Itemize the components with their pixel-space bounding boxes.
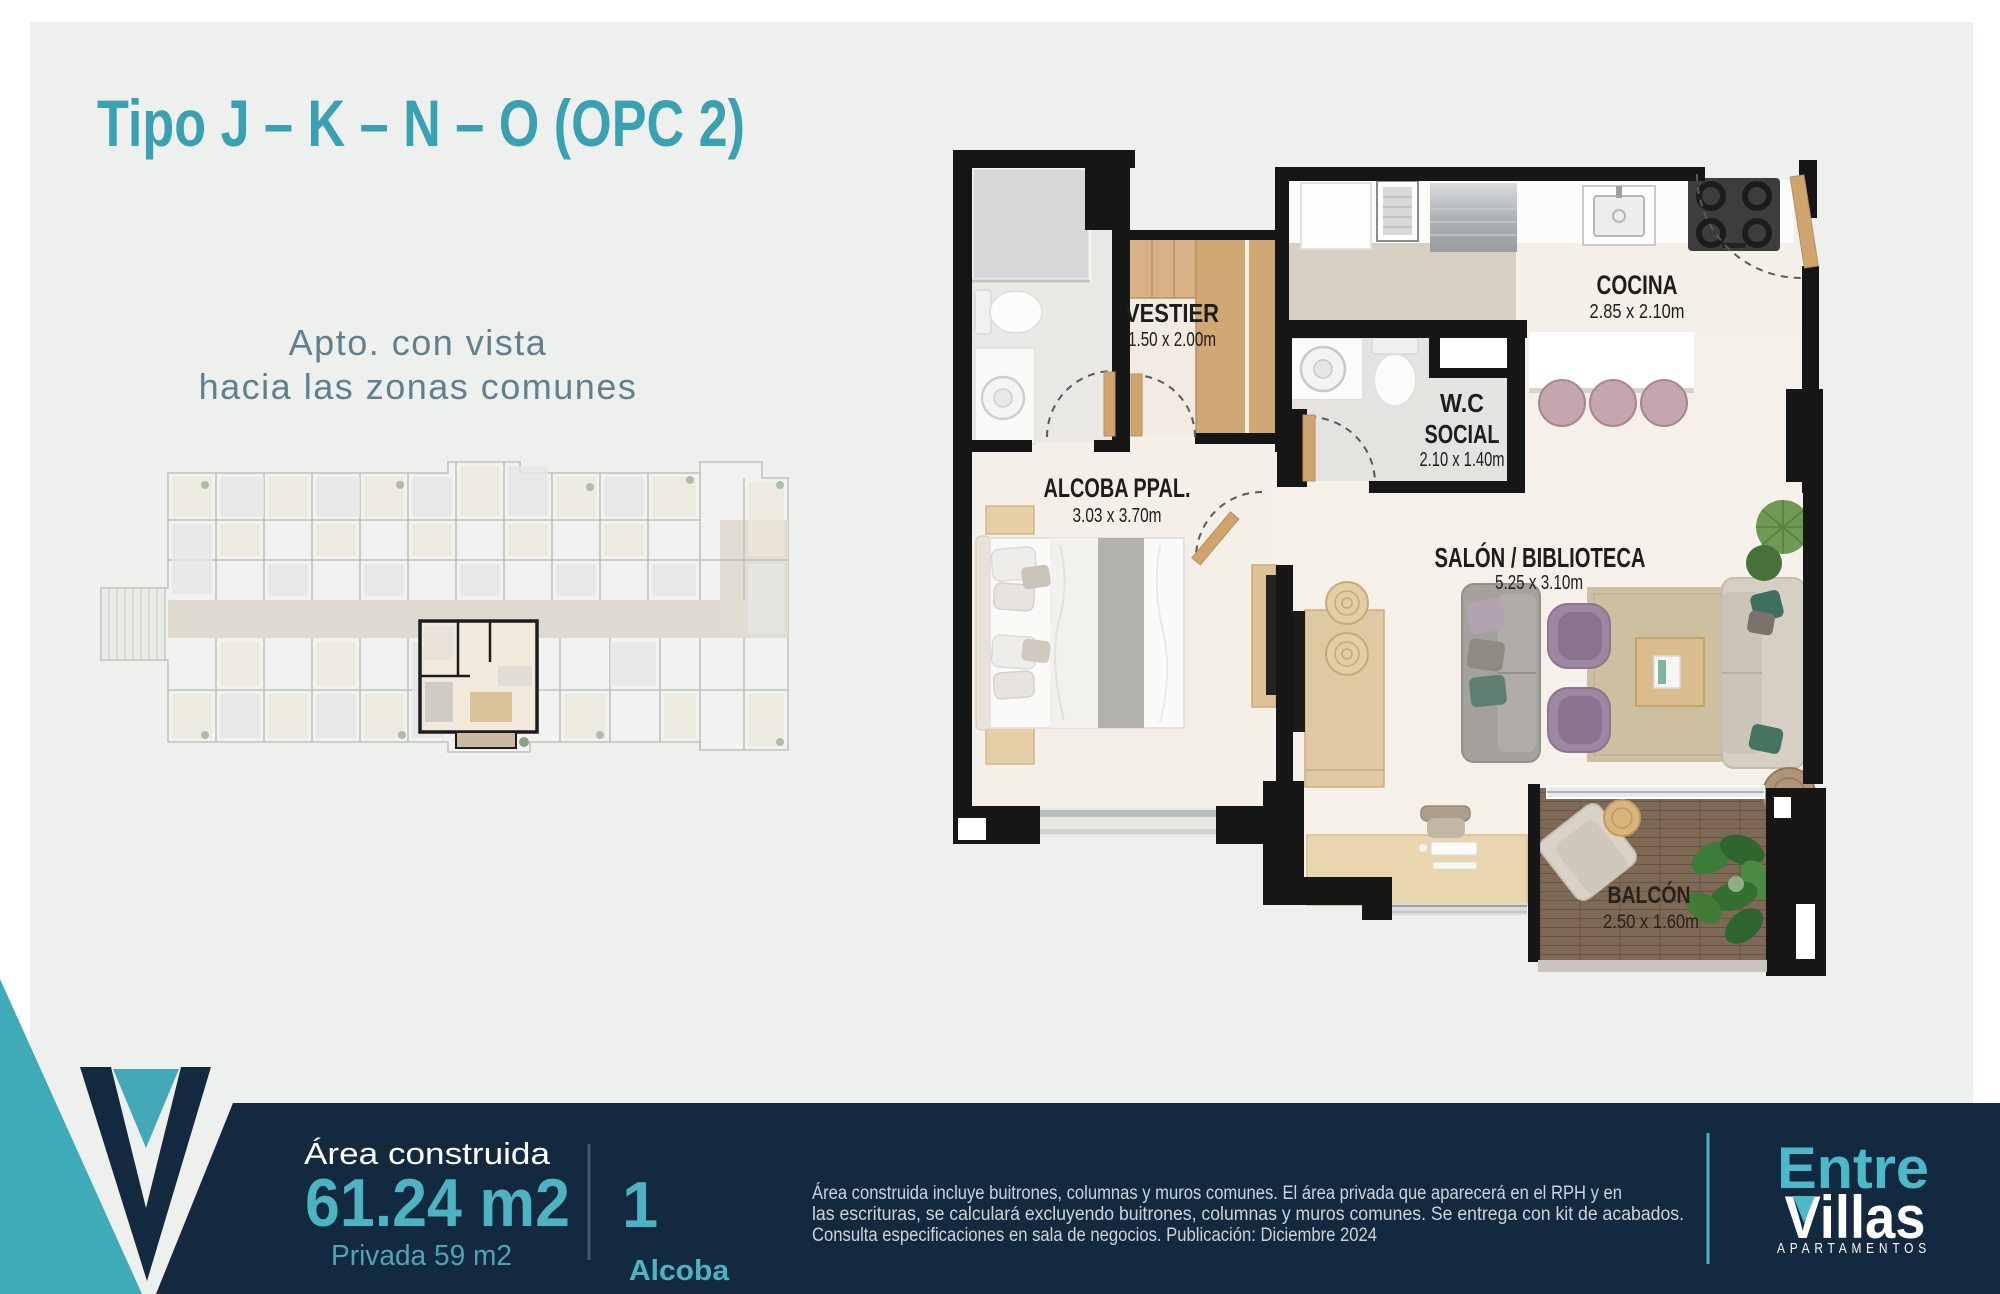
svg-text:SOCIAL: SOCIAL xyxy=(1425,419,1500,449)
svg-text:2.85 x 2.10m: 2.85 x 2.10m xyxy=(1590,301,1685,323)
svg-text:SALÓN / BIBLIOTECA: SALÓN / BIBLIOTECA xyxy=(1435,542,1646,573)
svg-text:APARTAMENTOS: APARTAMENTOS xyxy=(1777,1240,1931,1257)
svg-text:2.50 x 1.60m: 2.50 x 1.60m xyxy=(1603,912,1699,933)
svg-text:COCINA: COCINA xyxy=(1597,270,1678,300)
svg-text:Área construida incluye buitro: Área construida incluye buitrones, colum… xyxy=(812,1183,1622,1204)
svg-text:1: 1 xyxy=(622,1168,658,1241)
svg-text:BALCÓN: BALCÓN xyxy=(1608,881,1691,909)
svg-text:Alcoba: Alcoba xyxy=(629,1255,730,1287)
svg-text:2.10 x 1.40m: 2.10 x 1.40m xyxy=(1420,449,1505,471)
svg-text:1.50 x 2.00m: 1.50 x 2.00m xyxy=(1128,329,1216,351)
svg-text:las escrituras, se calculará e: las escrituras, se calculará excluyendo … xyxy=(812,1204,1684,1225)
svg-text:61.24 m2: 61.24 m2 xyxy=(305,1165,570,1241)
svg-text:VESTIER: VESTIER xyxy=(1125,298,1219,328)
svg-text:Apto. con vista: Apto. con vista xyxy=(289,322,548,363)
svg-text:Privada 59 m2: Privada 59 m2 xyxy=(331,1240,512,1272)
svg-text:3.03 x 3.70m: 3.03 x 3.70m xyxy=(1073,505,1162,527)
svg-text:5.25 x 3.10m: 5.25 x 3.10m xyxy=(1495,572,1583,594)
svg-text:Tipo J – K – N – O (OPC 2): Tipo J – K – N – O (OPC 2) xyxy=(97,86,745,160)
svg-text:Consulta especificaciones en s: Consulta especificaciones en sala de neg… xyxy=(812,1225,1377,1246)
svg-text:hacia las zonas comunes: hacia las zonas comunes xyxy=(199,366,638,407)
svg-text:ALCOBA PPAL.: ALCOBA PPAL. xyxy=(1044,473,1191,503)
svg-text:W.C: W.C xyxy=(1440,388,1484,418)
